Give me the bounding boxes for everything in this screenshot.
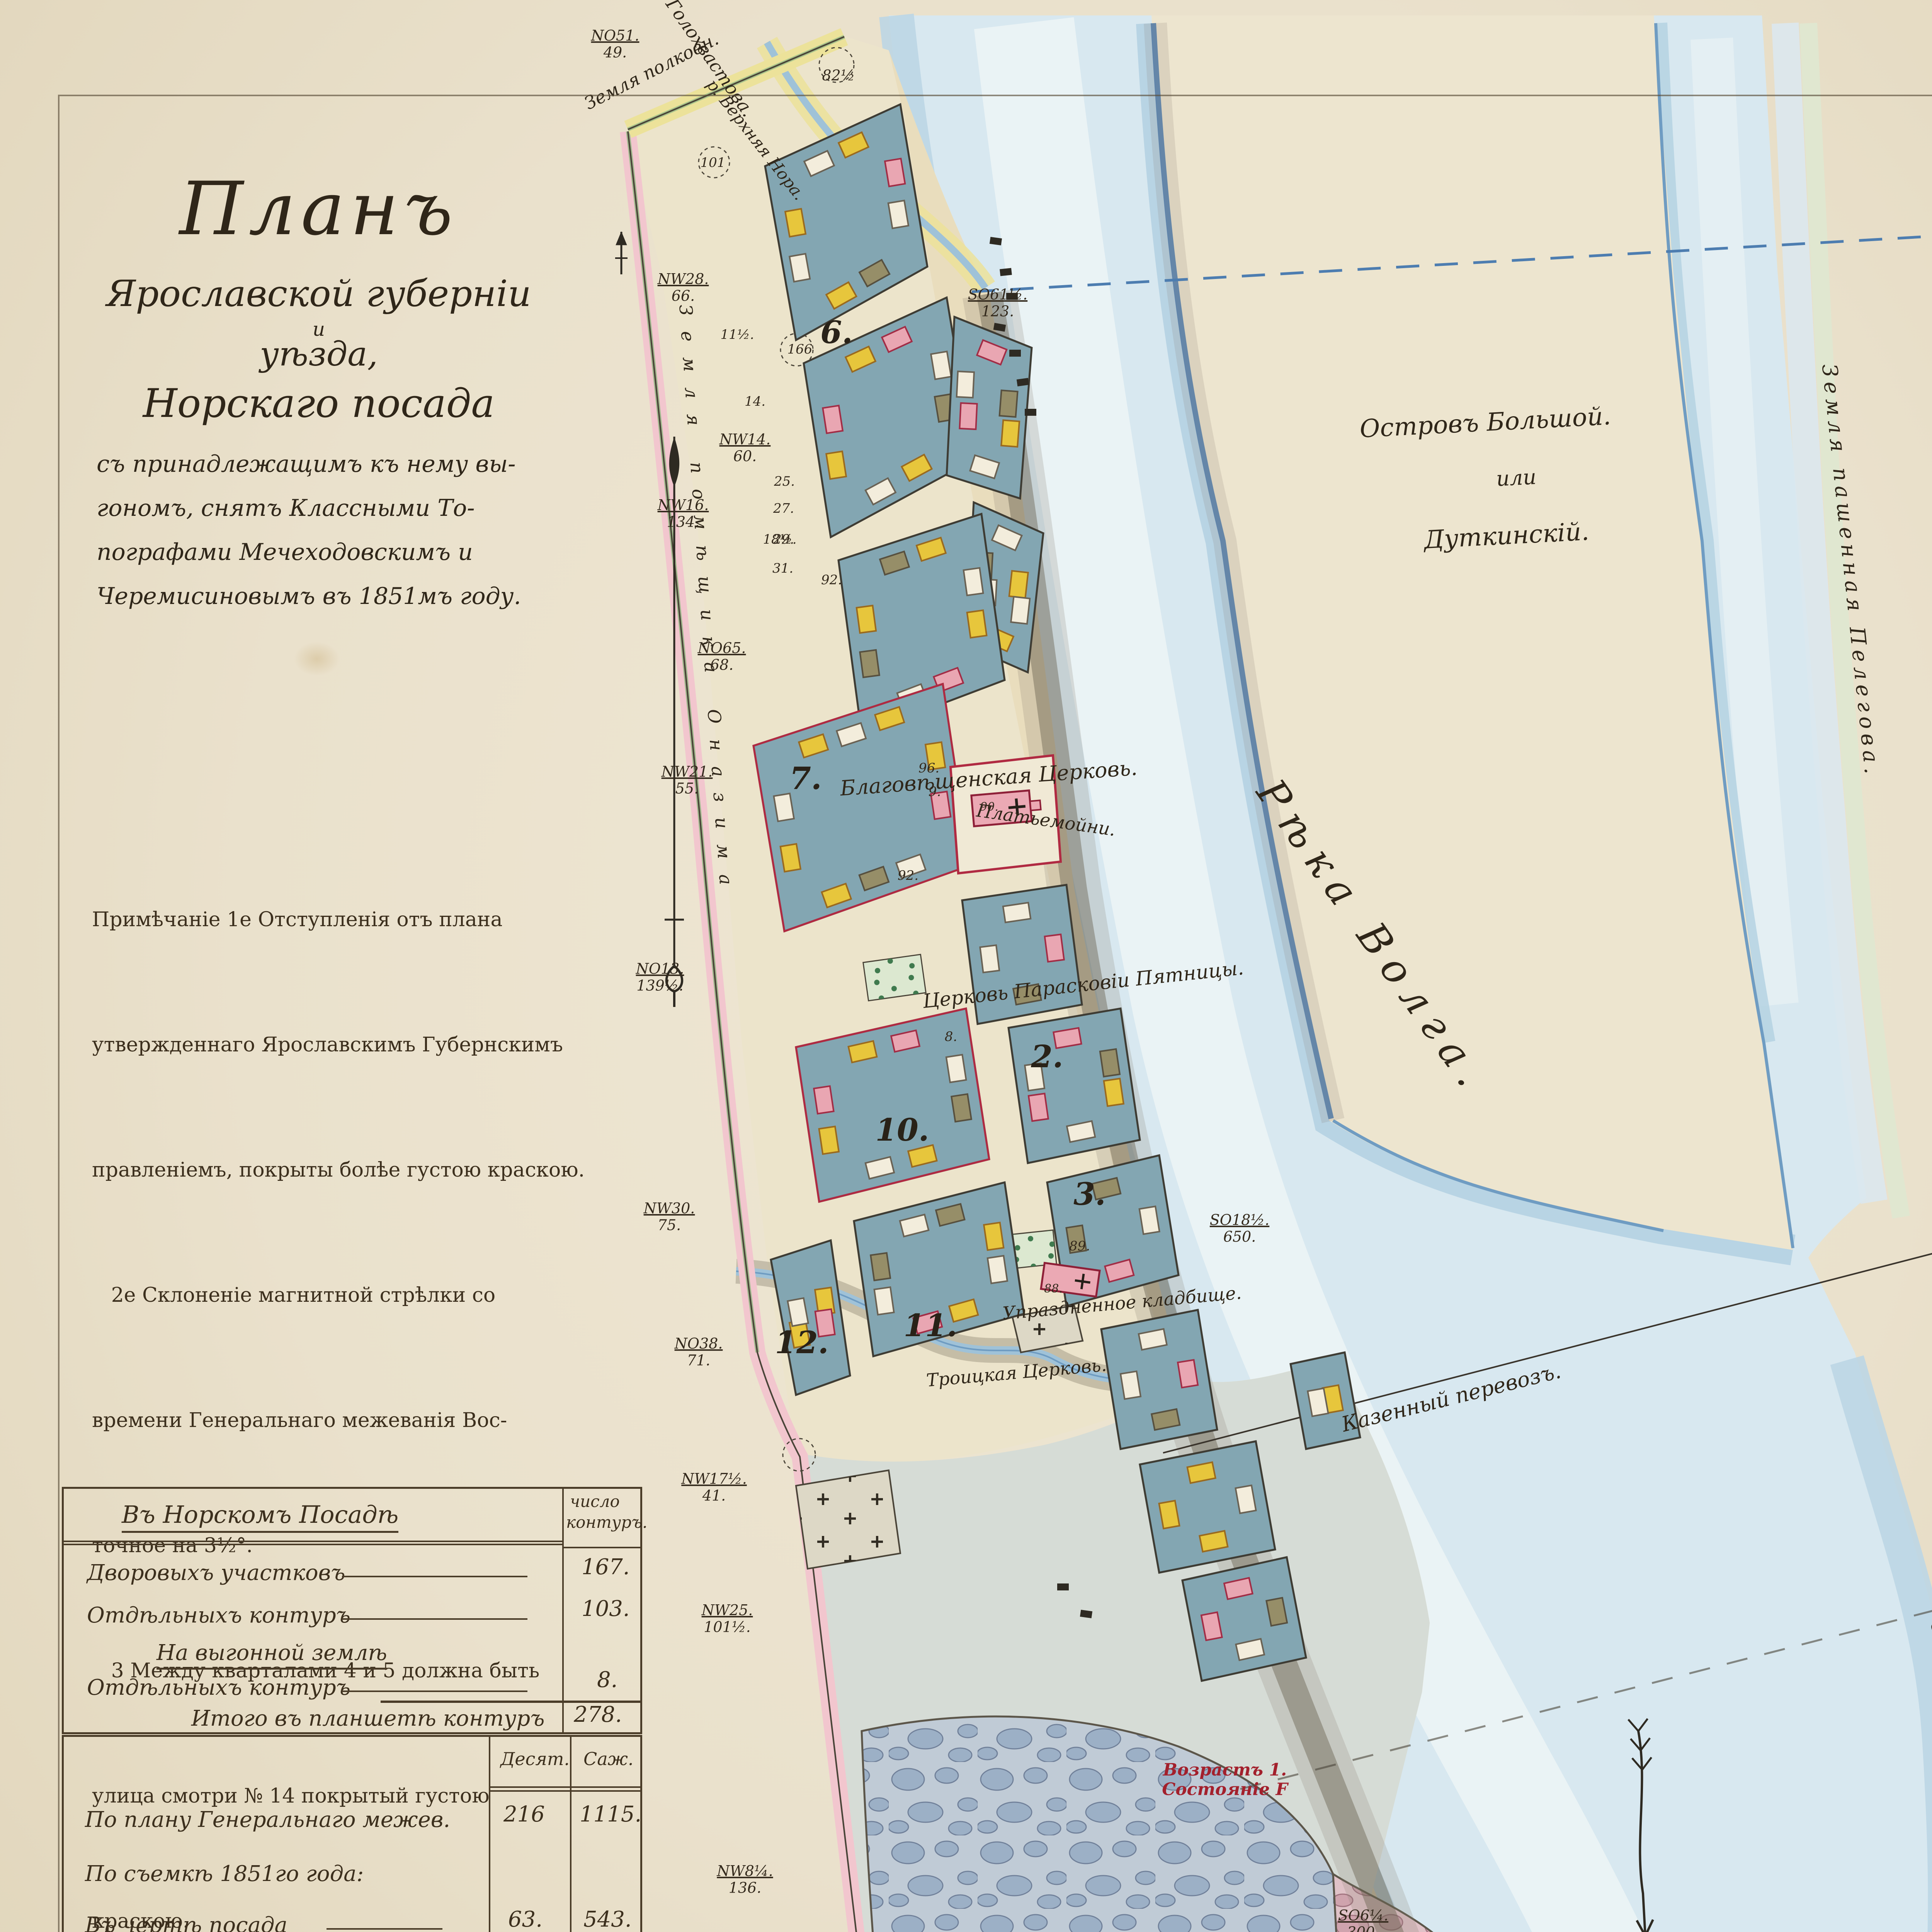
table1-col-header: число	[570, 1492, 620, 1511]
note-line: правленіемъ, покрыты болѣе густою краско…	[92, 1149, 672, 1191]
table1-row2-label: Отдѣльныхъ контуръ	[87, 1603, 350, 1628]
table2-row1-v1: 216	[503, 1802, 545, 1827]
title-note-line2: гономъ, снятъ Классными То-	[97, 486, 541, 530]
table2-row2-label: По съемкѣ 1851го года:	[85, 1861, 364, 1886]
table2-row1-label: По плану Генеральнаго межев.	[85, 1807, 450, 1832]
table1-subheader: На выгонной землѣ	[156, 1640, 387, 1670]
note-line: 2е Склоненіе магнитной стрѣлки со	[92, 1274, 672, 1316]
map-title: Планъ	[97, 166, 541, 252]
table2-col1-header: Десят.	[500, 1748, 570, 1769]
table1-row2-value: 103.	[582, 1596, 630, 1621]
note-line: Примѣчаніе 1е Отступленія отъ плана	[92, 899, 672, 940]
contours-table: Въ Норскомъ Посадѣ число контуръ. Дворов…	[62, 1487, 642, 1734]
table2-row1-v2: 1115.	[580, 1802, 641, 1827]
bearing: NO51.49.	[591, 27, 639, 61]
table1-total-label: Итого въ планшетѣ контуръ	[191, 1706, 544, 1731]
table1-header: Въ Норскомъ Посадѣ	[122, 1500, 398, 1533]
title-note-line3: пографами Мечеходовскимъ и	[97, 530, 541, 574]
table2-row3-v1: 63.	[508, 1907, 543, 1932]
table1-row1-label: Дворовыхъ участковъ	[87, 1560, 345, 1585]
title-note-line4: Черемисиновымъ въ 1851мъ году.	[97, 574, 541, 618]
area-table: Десят. Саж. По плану Генеральнаго межев.…	[62, 1735, 642, 1932]
bearing-single: 82½	[822, 67, 855, 84]
title-block: Планъ Ярославской губерніи и уѣзда, Норс…	[97, 166, 541, 618]
table1-col-header2: контуръ.	[566, 1513, 647, 1532]
title-note-line1: съ принадлежащимъ къ нему вы-	[97, 442, 541, 486]
map-subtitle-posad: Норскаго посада	[97, 381, 541, 427]
table1-row1-value: 167.	[582, 1554, 630, 1580]
table2-row3-v2: 543.	[583, 1907, 632, 1932]
map-sheet: 8 6 4 2 50 40 30 20 10 50. 100. 150 200 …	[0, 0, 1932, 1932]
note-line: времени Генеральнаго межеванія Вос-	[92, 1400, 672, 1441]
table1-row3-value: 8.	[597, 1667, 617, 1692]
table2-row3-label: Въ чертѣ посада	[85, 1913, 287, 1932]
map-subtitle-uezd: уѣзда,	[97, 335, 541, 374]
table1-row3-label: Отдѣльныхъ контуръ	[87, 1675, 350, 1700]
map-subtitle-gubernia: Ярославской губерніи	[97, 273, 541, 315]
note-line: утвержденнаго Ярославскимъ Губернскимъ	[92, 1024, 672, 1066]
table2-col2-header: Саж.	[583, 1748, 634, 1769]
table1-total-value: 278.	[574, 1702, 622, 1727]
